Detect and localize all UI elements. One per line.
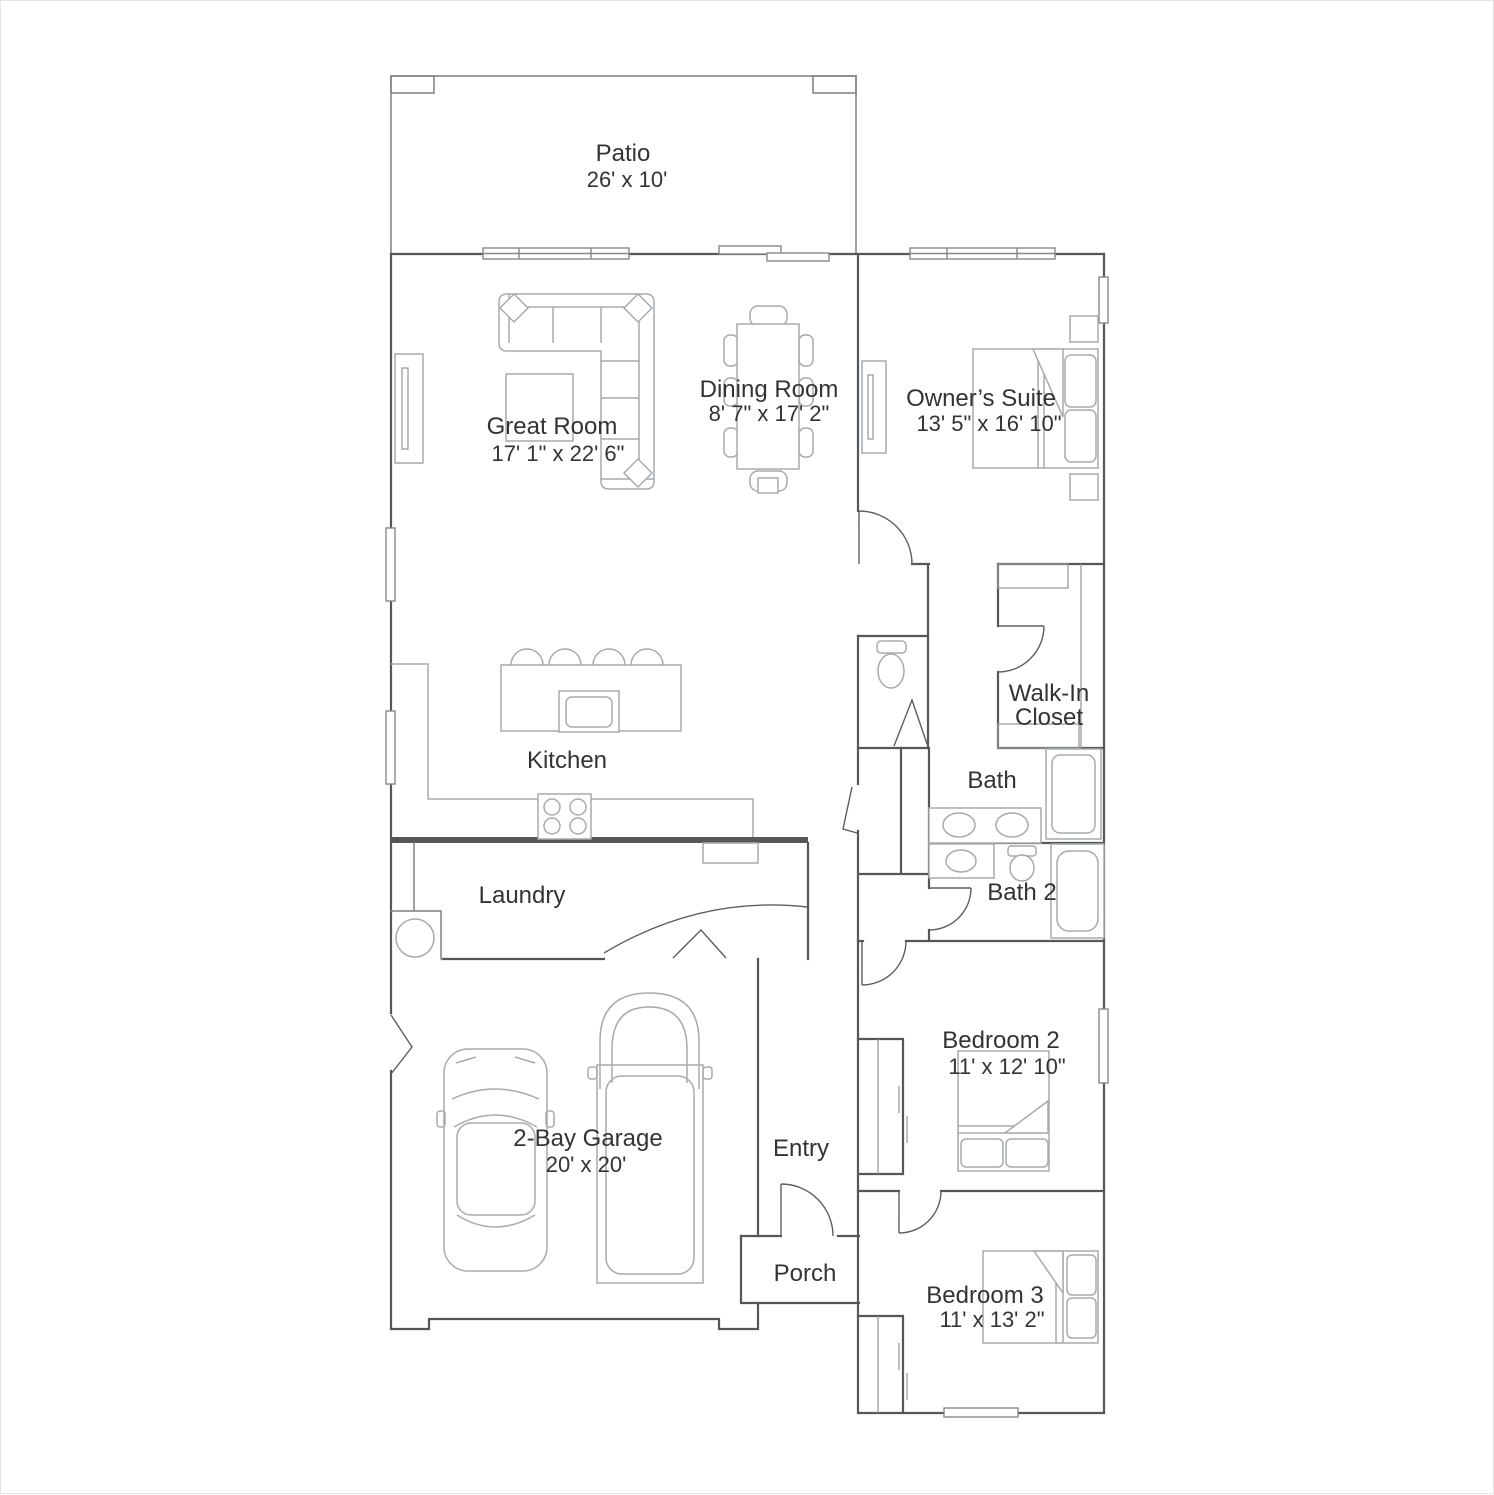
kitchen-label: Kitchen [527, 747, 607, 774]
bedroom-2-dims: 11' x 12' 10" [948, 1054, 1065, 1079]
dining-room-dims: 8' 7" x 17' 2" [709, 401, 830, 426]
pillow [1065, 355, 1096, 407]
bedroom-3-dims: 11' x 13' 2" [939, 1307, 1044, 1332]
front-door [781, 1184, 833, 1236]
great-room-window [483, 248, 629, 259]
bedroom-2-door [862, 941, 906, 985]
walk-in-closet-door [998, 626, 1044, 672]
bedroom-3-door [899, 1191, 941, 1233]
owners-suite-label: Owner’s Suite [906, 385, 1056, 412]
bedroom-3-closet [858, 1316, 907, 1413]
pillow [961, 1139, 1003, 1167]
shower [1046, 749, 1101, 839]
owners-suite-window-right [1099, 277, 1108, 323]
owners-suite-door [859, 511, 912, 564]
great-room-window-seat [395, 354, 423, 463]
owners-suite-window-top [910, 248, 1055, 259]
bedroom-3-label: Bedroom 3 [926, 1282, 1043, 1309]
cabinet [703, 843, 758, 863]
pillow [1067, 1298, 1096, 1338]
patio-post [391, 76, 434, 93]
bath-label: Bath [967, 767, 1016, 794]
garage-side-door [391, 1015, 412, 1074]
pillow [1065, 410, 1096, 462]
bath-2-door [929, 888, 971, 930]
column [758, 478, 778, 493]
car-mirror [703, 1067, 712, 1079]
bar-stool [549, 649, 581, 665]
walk-in-closet-label-line2: Closet [1015, 704, 1083, 731]
sedan-car [437, 1049, 554, 1271]
laundry-label: Laundry [479, 882, 566, 909]
great-room-label: Great Room [487, 413, 618, 440]
dining-room-label: Dining Room [700, 376, 839, 403]
stove [538, 794, 591, 839]
floor-plan: Patio 26' x 10' Great Room 17' 1" x 22' … [0, 0, 1494, 1494]
bedroom-2-window [1099, 1009, 1108, 1083]
porch-label: Porch [774, 1260, 837, 1287]
great-room-dims: 17' 1" x 22' 6" [492, 441, 625, 466]
garage-dims: 20' x 20' [546, 1152, 627, 1177]
bath-2-toilet [1008, 846, 1036, 881]
dining-chair [799, 335, 813, 366]
owners-suite-window-seat [862, 361, 886, 453]
pillow [1067, 1255, 1096, 1295]
water-closet-toilet [877, 641, 906, 688]
bar-stool [631, 649, 663, 665]
garage-label: 2-Bay Garage [513, 1125, 662, 1152]
water-closet-door [894, 700, 927, 746]
kitchen-window-upper [386, 528, 395, 601]
dining-chair [724, 428, 738, 457]
nightstand [1070, 474, 1098, 500]
owners-suite-dims: 13' 5" x 16' 10" [916, 411, 1061, 436]
bath-2-label: Bath 2 [987, 879, 1056, 906]
walk-in-closet-label-line1: Walk-In [1009, 680, 1089, 707]
bath-2-vanity [929, 844, 994, 878]
bathtub [1051, 844, 1104, 938]
patio-sliding-door [719, 246, 829, 261]
patio-dims: 26' x 10' [587, 167, 668, 192]
bar-stool [511, 649, 543, 665]
dining-chair [724, 335, 738, 366]
patio-label: Patio [596, 140, 651, 167]
nightstand [1070, 316, 1098, 342]
hall-door [843, 787, 857, 833]
dining-chair [750, 306, 787, 326]
patio-post [813, 76, 856, 93]
pillow [1006, 1139, 1048, 1167]
laundry-door [604, 905, 807, 953]
dining-chair [799, 428, 813, 457]
entry-label: Entry [773, 1135, 829, 1162]
bedroom-2-label: Bedroom 2 [942, 1027, 1059, 1054]
kitchen-island [501, 649, 681, 732]
floor-plan-drawing: Patio 26' x 10' Great Room 17' 1" x 22' … [1, 1, 1494, 1495]
kitchen-window-lower [386, 711, 395, 784]
water-heater [396, 919, 434, 957]
bath-double-vanity [929, 808, 1041, 843]
garage-entry-door [673, 930, 726, 958]
bedroom-2-closet [858, 1039, 907, 1174]
bedroom-3-window [944, 1408, 1018, 1417]
bar-stool [593, 649, 625, 665]
car-mirror [588, 1067, 597, 1079]
